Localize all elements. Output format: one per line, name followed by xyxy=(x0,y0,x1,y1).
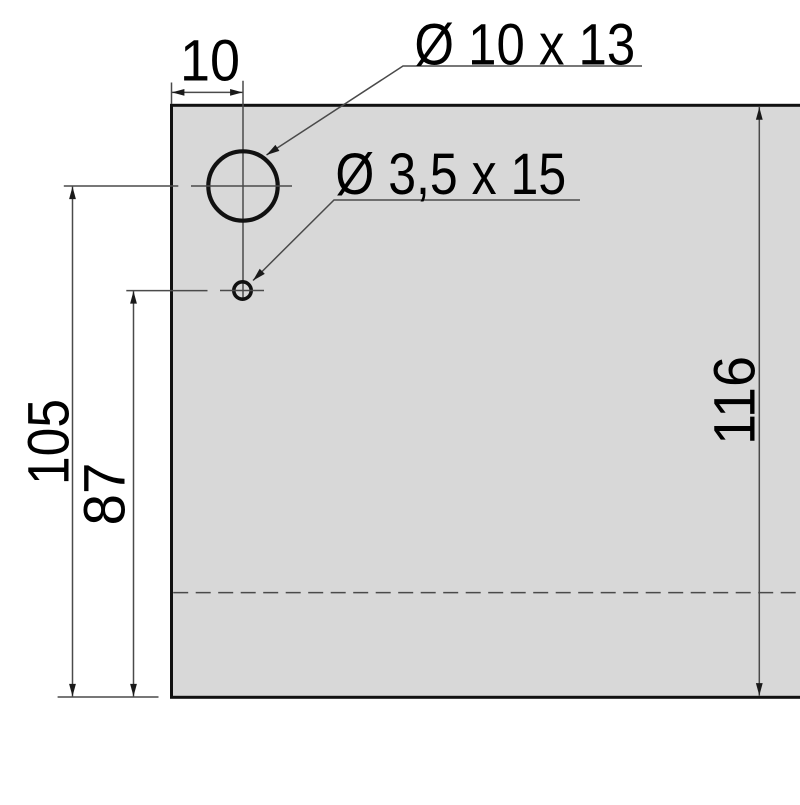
svg-text:Ø 10 x 13: Ø 10 x 13 xyxy=(414,13,635,78)
svg-text:87: 87 xyxy=(73,463,138,526)
svg-text:10: 10 xyxy=(180,29,240,94)
svg-text:116: 116 xyxy=(703,356,768,445)
svg-text:Ø 3,5 x 15: Ø 3,5 x 15 xyxy=(335,142,566,207)
